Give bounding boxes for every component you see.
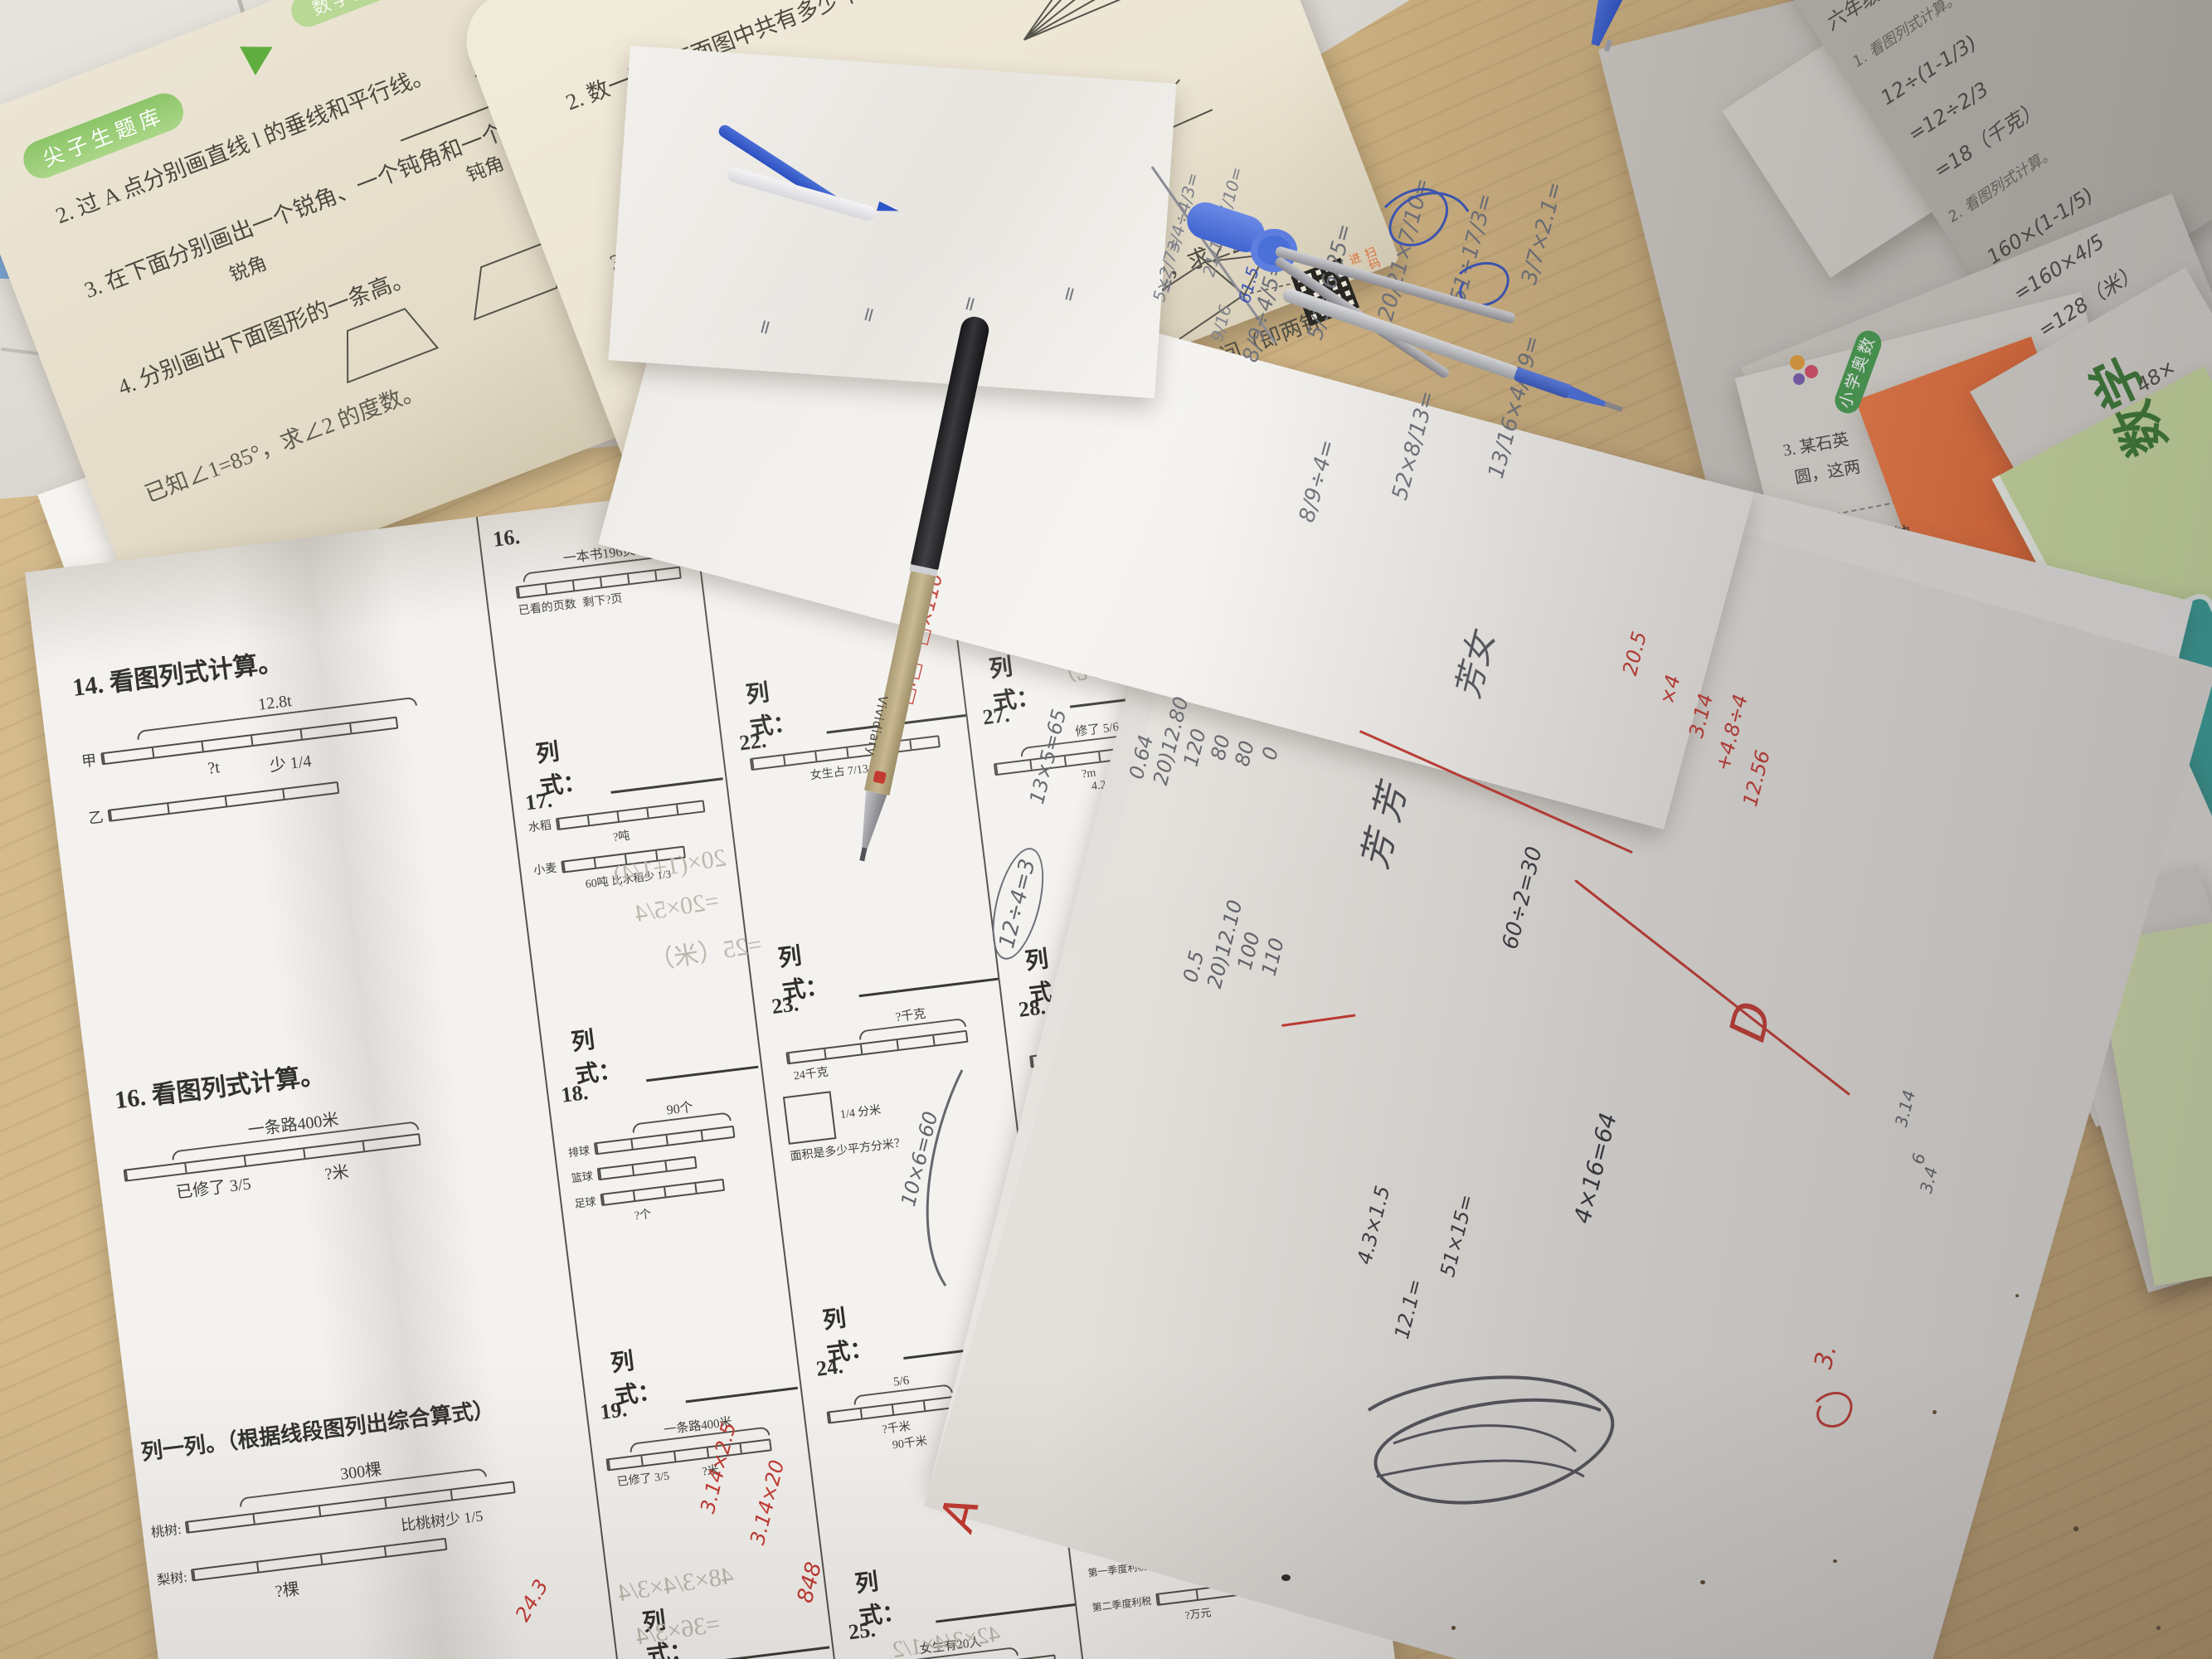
desk-speck [1833, 1559, 1837, 1563]
desk-speck [1932, 1410, 1937, 1414]
pencil-tip [1604, 401, 1623, 412]
desk-speck [2156, 1626, 2161, 1630]
desk-speck [2073, 1526, 2078, 1531]
desk-speck [1700, 1580, 1705, 1584]
pen-cone [853, 791, 887, 852]
desk-speck [1281, 1574, 1291, 1581]
desk-photo: 数学 六年级上册数学计算专题（看图列式）1. 看图列式计算。12÷(1-1/3)… [0, 0, 2212, 1659]
pen-logo [873, 771, 887, 785]
desk-speck [2015, 1294, 2019, 1297]
desk-speck [1451, 1626, 1456, 1630]
pen-tip [859, 847, 867, 861]
scribble-layer [0, 0, 2212, 1659]
